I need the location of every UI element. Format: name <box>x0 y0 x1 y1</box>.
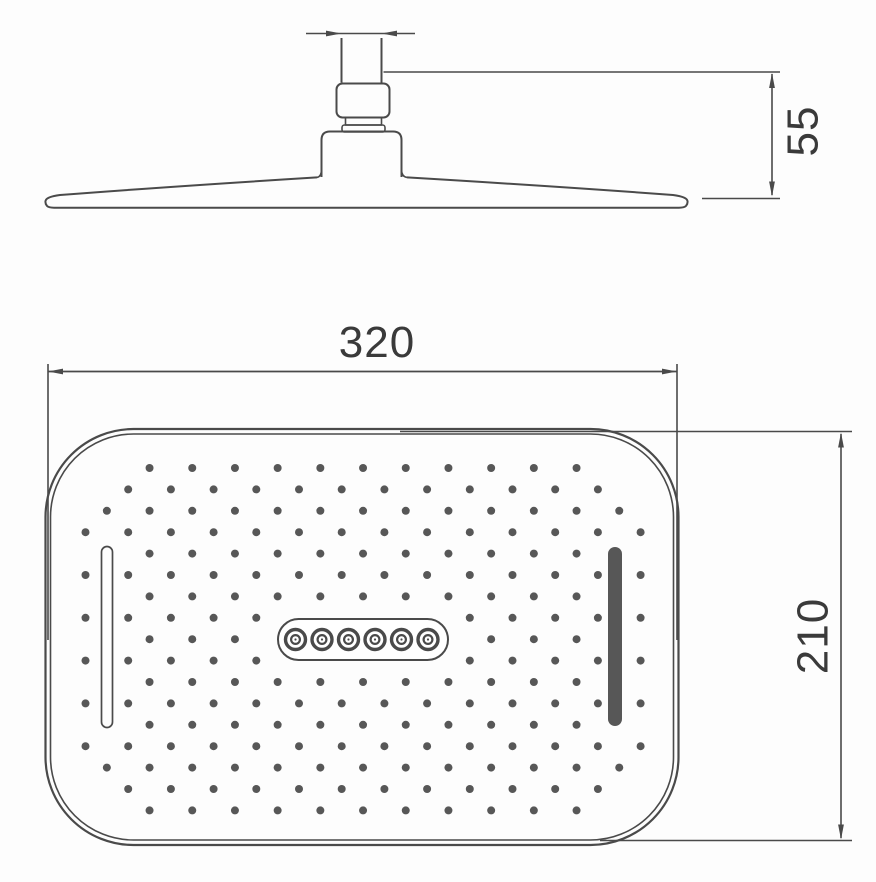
nozzle-dot <box>82 528 90 536</box>
nozzle-dot <box>444 464 452 472</box>
nozzle-dot <box>615 507 623 515</box>
nozzle-dot <box>252 742 260 750</box>
nozzle-dot <box>146 678 154 686</box>
nozzle-dot <box>466 571 474 579</box>
nozzle-dot <box>124 571 132 579</box>
height-dim-arrow-down-icon <box>838 825 844 840</box>
nozzle-dot <box>466 699 474 707</box>
nozzle-dot <box>530 635 538 643</box>
nozzle-dot <box>509 785 517 793</box>
nozzle-dot <box>551 785 559 793</box>
nozzle-dot <box>551 485 559 493</box>
nozzle-dot <box>487 806 495 814</box>
nozzle-dot <box>82 742 90 750</box>
nozzle-dot <box>210 485 218 493</box>
nozzle-dot <box>423 742 431 750</box>
nozzle-dot <box>380 742 388 750</box>
inlet-dim-arrow-right-icon <box>382 31 398 37</box>
nozzle-dot <box>444 721 452 729</box>
nozzle-dot <box>338 699 346 707</box>
nozzle-dot <box>594 742 602 750</box>
nozzle-dot <box>231 507 239 515</box>
nozzle-dot <box>146 721 154 729</box>
nozzle-dot <box>573 764 581 772</box>
nozzle-dot <box>274 550 282 558</box>
nozzle-dot <box>573 678 581 686</box>
nozzle-dot <box>338 785 346 793</box>
nozzle-dot <box>274 806 282 814</box>
nozzle-dot <box>487 764 495 772</box>
nozzle-dot <box>423 699 431 707</box>
nozzle-dot <box>295 742 303 750</box>
nozzle-dot <box>82 571 90 579</box>
nozzle-dot <box>231 721 239 729</box>
nozzle-dot <box>188 592 196 600</box>
nozzle-dot <box>124 657 132 665</box>
nozzle-dot <box>551 657 559 665</box>
nozzle-dot <box>274 678 282 686</box>
nozzle-dot <box>188 806 196 814</box>
nozzle-dot <box>188 464 196 472</box>
nozzle-dot <box>487 464 495 472</box>
nozzle-dot <box>573 806 581 814</box>
width-dimension: 320 <box>48 318 677 640</box>
nozzle-dot <box>637 571 645 579</box>
depth-dimension-value: 55 <box>779 106 828 157</box>
nozzle-dot <box>231 464 239 472</box>
nozzle-dot <box>487 721 495 729</box>
nozzle-dot <box>530 464 538 472</box>
nozzle-dot <box>167 571 175 579</box>
nozzle-dot <box>252 528 260 536</box>
nozzle-dot <box>466 742 474 750</box>
nozzle-dot <box>167 614 175 622</box>
nozzle-dot <box>146 550 154 558</box>
nozzle-dot <box>402 806 410 814</box>
nozzle-dot <box>167 657 175 665</box>
nozzle-dot <box>124 485 132 493</box>
nozzle-dot <box>82 657 90 665</box>
nozzle-dot <box>252 657 260 665</box>
nozzle-dot <box>146 507 154 515</box>
face-view: 320 210 <box>46 318 853 845</box>
nozzle-dot <box>188 550 196 558</box>
nozzle-dot <box>466 614 474 622</box>
nozzle-dot <box>444 550 452 558</box>
nozzle-dot <box>103 764 111 772</box>
nozzle-dot <box>573 507 581 515</box>
nozzle-dot <box>210 742 218 750</box>
nozzle-dot <box>231 764 239 772</box>
nozzle-dot <box>637 657 645 665</box>
nozzle-dot <box>338 485 346 493</box>
nozzle-dot <box>402 550 410 558</box>
nozzle-dot <box>637 742 645 750</box>
nozzle-dot <box>380 699 388 707</box>
nozzle-dot <box>231 806 239 814</box>
nozzle-dot <box>594 528 602 536</box>
nozzle-dot <box>82 699 90 707</box>
nozzle-dot <box>359 806 367 814</box>
center-nozzle-core <box>427 638 429 640</box>
height-dimension-value: 210 <box>789 598 838 674</box>
center-nozzle-core <box>347 638 349 640</box>
nozzle-dot <box>231 635 239 643</box>
nozzle-dot <box>402 592 410 600</box>
nozzle-dot <box>210 657 218 665</box>
nozzle-dot <box>380 485 388 493</box>
nozzle-dot <box>594 699 602 707</box>
nozzle-dot <box>487 507 495 515</box>
nozzle-dot <box>316 806 324 814</box>
nozzle-dot <box>359 592 367 600</box>
nozzle-dot <box>487 550 495 558</box>
nozzle-dot <box>530 764 538 772</box>
nozzle-dot <box>530 507 538 515</box>
nozzle-dot <box>231 592 239 600</box>
nozzle-dot <box>252 571 260 579</box>
nozzle-dot <box>124 699 132 707</box>
nozzle-dot <box>530 721 538 729</box>
nozzle-dot <box>551 699 559 707</box>
nozzle-dot <box>530 806 538 814</box>
nozzle-dot <box>466 785 474 793</box>
nozzle-dot <box>637 528 645 536</box>
nozzle-dot <box>380 785 388 793</box>
collar-upper <box>346 118 382 126</box>
nozzle-dot <box>423 571 431 579</box>
inlet-dim-arrow-left-icon <box>326 31 342 37</box>
nozzle-dot <box>252 785 260 793</box>
nozzle-dot <box>210 571 218 579</box>
nozzle-dot <box>573 550 581 558</box>
center-nozzle-core <box>321 638 323 640</box>
nozzle-dot <box>402 764 410 772</box>
nozzle-dot <box>103 507 111 515</box>
nozzle-dot <box>146 764 154 772</box>
nozzle-dot <box>444 764 452 772</box>
nozzle-dot <box>551 528 559 536</box>
nozzle-dot <box>316 592 324 600</box>
width-dim-arrow-left-icon <box>48 369 63 375</box>
nozzle-dot <box>167 485 175 493</box>
nozzle-dot <box>487 635 495 643</box>
depth-dim-arrow-down-icon <box>769 182 775 197</box>
nozzle-dot <box>252 614 260 622</box>
center-nozzle-core <box>374 638 376 640</box>
center-nozzle-core <box>400 638 402 640</box>
nozzle-dot <box>167 528 175 536</box>
nozzle-dot <box>551 742 559 750</box>
right-slot <box>608 547 622 726</box>
nozzle-dot <box>509 742 517 750</box>
depth-dim-arrow-up-icon <box>769 73 775 88</box>
nozzle-dot <box>295 699 303 707</box>
nozzle-dot <box>338 742 346 750</box>
nozzle-dot <box>167 742 175 750</box>
nozzle-dot <box>594 785 602 793</box>
nozzle-dot <box>316 764 324 772</box>
nozzle-dot <box>252 485 260 493</box>
nozzle-dot <box>380 528 388 536</box>
nozzle-dot <box>530 678 538 686</box>
width-dim-arrow-right-icon <box>662 369 677 375</box>
nozzle-dot <box>444 592 452 600</box>
nozzle-dot <box>124 785 132 793</box>
nozzle-dot <box>509 571 517 579</box>
nozzle-dot <box>359 678 367 686</box>
nozzle-dot <box>530 592 538 600</box>
nozzle-dot <box>509 657 517 665</box>
nozzle-dot <box>380 571 388 579</box>
head-body <box>322 132 402 178</box>
nozzle-dot <box>423 528 431 536</box>
nozzle-dot <box>594 485 602 493</box>
nozzle-dot <box>573 721 581 729</box>
inlet-dimension <box>306 31 415 37</box>
connector-nut <box>337 84 390 118</box>
nozzle-dot <box>124 528 132 536</box>
nozzle-dot <box>146 806 154 814</box>
nozzle-dot <box>274 507 282 515</box>
nozzle-dot <box>210 699 218 707</box>
left-slot <box>102 547 113 728</box>
nozzle-dot <box>615 764 623 772</box>
nozzle-dot <box>338 528 346 536</box>
nozzle-dot <box>637 699 645 707</box>
nozzle-dot <box>231 550 239 558</box>
nozzle-dot <box>359 507 367 515</box>
nozzle-dot <box>487 592 495 600</box>
nozzle-dot <box>466 657 474 665</box>
nozzle-dot <box>295 528 303 536</box>
nozzle-dot <box>359 550 367 558</box>
nozzle-dot <box>637 614 645 622</box>
nozzle-dot <box>167 699 175 707</box>
nozzle-dot <box>252 699 260 707</box>
nozzle-dot <box>551 571 559 579</box>
nozzle-dot <box>509 528 517 536</box>
head-profile <box>45 177 687 207</box>
nozzle-dot <box>530 550 538 558</box>
nozzle-dot <box>188 635 196 643</box>
nozzle-dot <box>146 464 154 472</box>
nozzle-dot <box>573 592 581 600</box>
nozzle-dot <box>188 721 196 729</box>
nozzle-dot <box>444 507 452 515</box>
nozzle-dot <box>359 464 367 472</box>
nozzle-dot <box>466 528 474 536</box>
height-dim-arrow-up-icon <box>838 433 844 448</box>
nozzle-dot <box>444 806 452 814</box>
nozzle-dot <box>146 592 154 600</box>
nozzle-dot <box>359 721 367 729</box>
nozzle-dot <box>124 742 132 750</box>
nozzle-dot <box>295 485 303 493</box>
nozzle-dot <box>509 485 517 493</box>
nozzle-dot <box>487 678 495 686</box>
nozzle-dot <box>509 614 517 622</box>
nozzle-dot <box>509 699 517 707</box>
nozzle-dot <box>359 764 367 772</box>
nozzle-dot <box>551 614 559 622</box>
nozzle-dot <box>316 678 324 686</box>
nozzle-dot <box>124 614 132 622</box>
nozzle-dot <box>210 528 218 536</box>
nozzle-dot <box>423 485 431 493</box>
nozzle-dot <box>402 678 410 686</box>
nozzle-dot <box>167 785 175 793</box>
nozzle-dot <box>402 721 410 729</box>
nozzle-dot <box>594 657 602 665</box>
nozzle-dot <box>402 507 410 515</box>
nozzle-dot <box>188 764 196 772</box>
nozzle-dot <box>295 571 303 579</box>
nozzle-dot <box>423 785 431 793</box>
nozzle-dot <box>188 507 196 515</box>
nozzle-dot <box>316 507 324 515</box>
nozzle-dot <box>274 592 282 600</box>
nozzle-dot <box>316 464 324 472</box>
nozzle-dot <box>594 571 602 579</box>
nozzle-dot <box>188 678 196 686</box>
nozzle-dot <box>274 721 282 729</box>
side-elevation-view: 55 <box>45 31 827 208</box>
nozzle-dot <box>210 614 218 622</box>
nozzle-dot <box>466 485 474 493</box>
nozzle-dot <box>594 614 602 622</box>
nozzle-dot <box>295 785 303 793</box>
nozzle-dot <box>210 785 218 793</box>
drawing-canvas: 55 320 210 <box>0 0 876 882</box>
center-nozzle-core <box>294 638 296 640</box>
nozzle-dot <box>274 764 282 772</box>
nozzle-dot <box>274 464 282 472</box>
width-dimension-value: 320 <box>339 318 415 367</box>
nozzle-dot <box>338 571 346 579</box>
nozzle-dot <box>402 464 410 472</box>
nozzle-dot <box>231 678 239 686</box>
nozzle-dot <box>316 721 324 729</box>
nozzle-dot <box>82 614 90 622</box>
nozzle-dot <box>444 678 452 686</box>
nozzle-dot <box>146 635 154 643</box>
nozzle-dot <box>573 464 581 472</box>
nozzle-dot <box>316 550 324 558</box>
nozzle-dot <box>573 635 581 643</box>
